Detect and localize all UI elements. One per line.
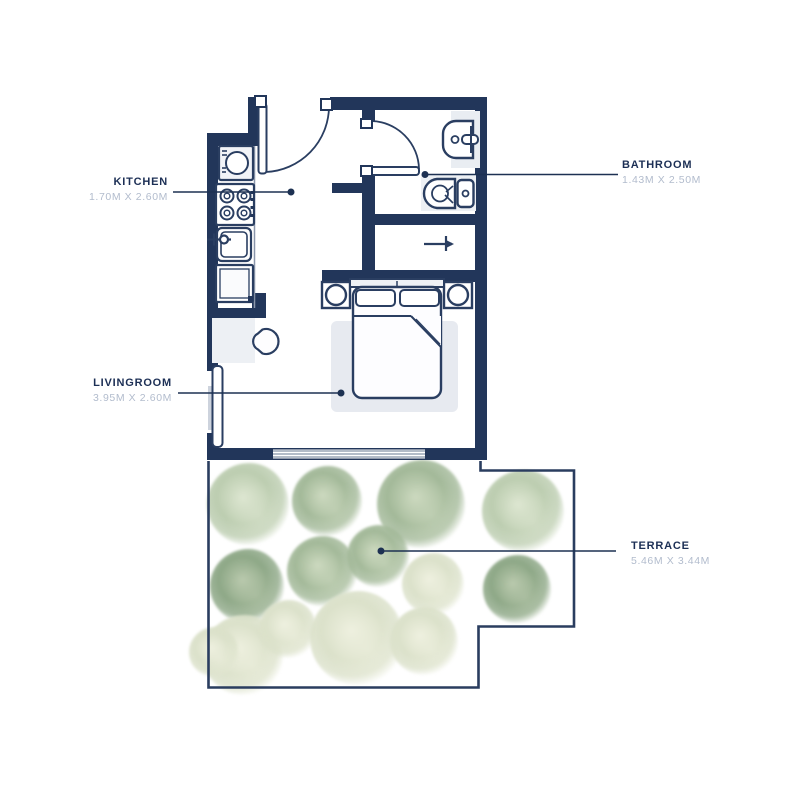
bathroom-label: BATHROOM 1.43M X 2.50M xyxy=(622,159,701,186)
desk xyxy=(212,318,255,363)
livingroom-label: LIVINGROOM 3.95M X 2.60M xyxy=(93,377,172,404)
bathroom-sink-icon xyxy=(443,111,480,168)
kitchen-dims: 1.70M X 2.60M xyxy=(89,191,168,203)
bathroom-door-arc xyxy=(371,121,419,169)
livingroom-name: LIVINGROOM xyxy=(93,377,172,390)
kitchen-label: KITCHEN 1.70M X 2.60M xyxy=(89,176,168,203)
bathroom-fixtures xyxy=(421,111,480,251)
bathroom-door-leaf xyxy=(367,167,419,175)
pillow xyxy=(356,290,395,306)
stove-icon xyxy=(216,184,255,225)
washer-icon xyxy=(219,146,253,180)
left-window-leaf xyxy=(213,366,223,447)
wall-hall-stub xyxy=(332,183,364,193)
lamp-icon xyxy=(326,285,346,305)
cabinet-icon xyxy=(216,265,253,303)
terrace-dims: 5.46M X 3.44M xyxy=(631,555,710,567)
chair-icon xyxy=(253,329,278,354)
livingroom-dims: 3.95M X 2.60M xyxy=(93,392,172,404)
bathroom-name: BATHROOM xyxy=(622,159,701,172)
wall-top-right xyxy=(330,97,487,110)
floor-plan: KITCHEN 1.70M X 2.60M BATHROOM 1.43M X 2… xyxy=(0,0,800,800)
entry-door-leaf xyxy=(259,104,267,174)
pillow xyxy=(400,290,439,306)
terrace-outline xyxy=(209,461,575,688)
valve-icon xyxy=(424,236,454,251)
lamp-icon xyxy=(448,285,468,305)
terrace-name: TERRACE xyxy=(631,540,710,553)
kitchen-name: KITCHEN xyxy=(89,176,168,189)
entry-door-arc xyxy=(266,107,329,172)
bathroom-dims: 1.43M X 2.50M xyxy=(622,174,701,186)
terrace-label: TERRACE 5.46M X 3.44M xyxy=(631,540,710,567)
wall-bath-bottom xyxy=(375,214,475,225)
toilet-icon xyxy=(421,175,476,211)
